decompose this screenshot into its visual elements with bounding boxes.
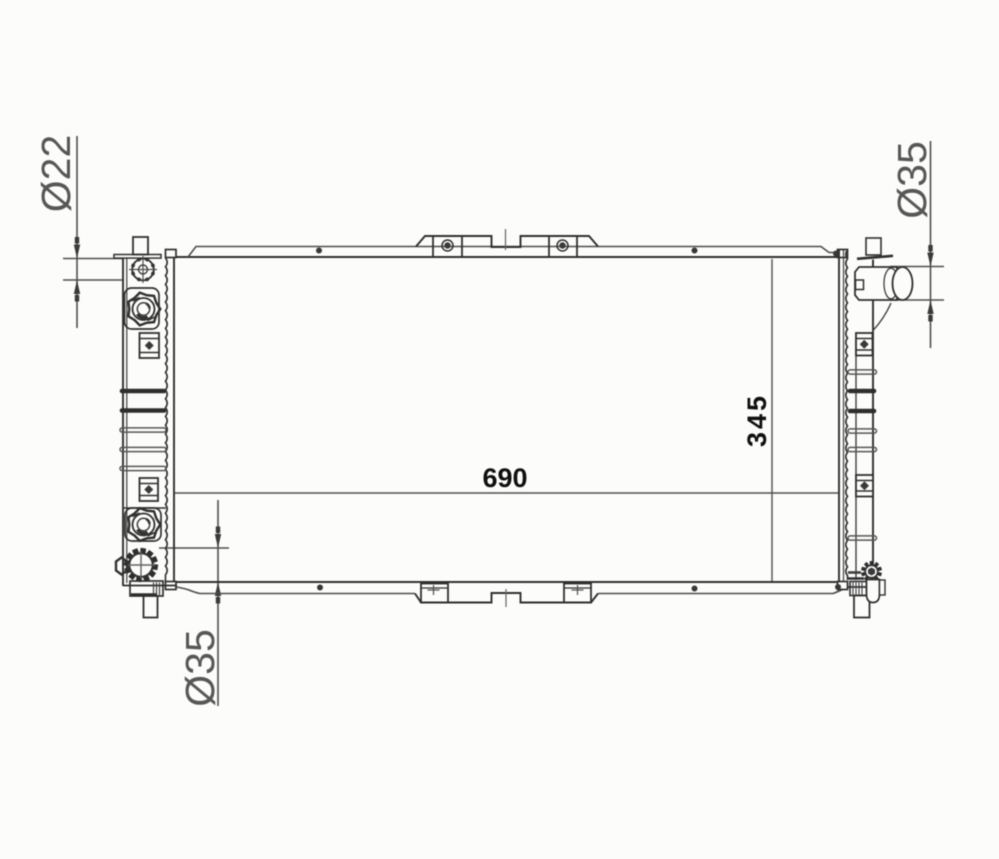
svg-text:Ø35: Ø35 — [177, 629, 223, 707]
svg-text:Ø22: Ø22 — [33, 135, 79, 213]
svg-text:690: 690 — [482, 463, 527, 493]
svg-text:Ø35: Ø35 — [889, 141, 935, 219]
svg-text:345: 345 — [742, 393, 772, 447]
